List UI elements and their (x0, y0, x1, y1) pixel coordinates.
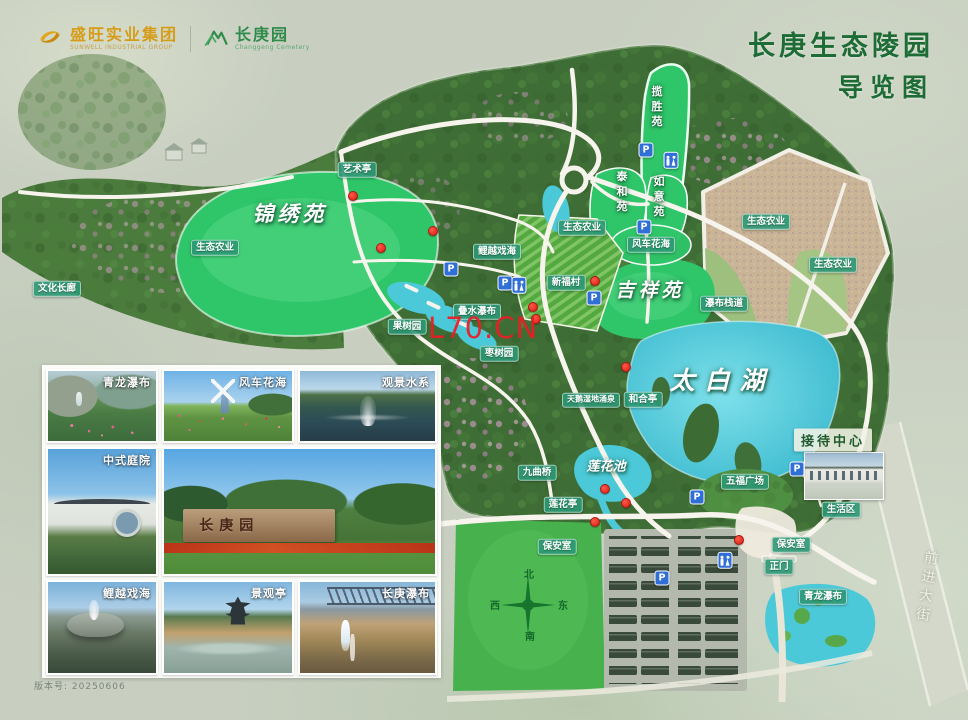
photo-label: 风车花海 (239, 374, 287, 390)
title-line1: 长庚生态陵园 (748, 24, 934, 63)
reception-photo (804, 452, 884, 500)
parking-icon: P (498, 276, 513, 291)
map-label-fengche-huahai-map: 风车花海 (627, 237, 675, 253)
gallery-photo-koi: 鲤越戏海 (46, 580, 158, 675)
company-name: 盛旺实业集团 (70, 26, 178, 44)
gallery-photo-windmill: 风车花海 (162, 369, 294, 443)
map-label-guoshuyuan: 果树园 (388, 319, 427, 335)
poi-marker (621, 498, 631, 508)
map-label-baoanshi-east: 保安室 (772, 537, 811, 553)
park-name: 长庚园 (235, 26, 310, 44)
restroom-icon (512, 277, 527, 294)
poi-marker (734, 535, 744, 545)
poi-marker (600, 484, 610, 494)
map-label-wufu-guangchang: 五福广场 (721, 474, 769, 490)
poi-marker (428, 226, 438, 236)
poi-marker (376, 243, 386, 253)
restroom-icon (718, 552, 733, 569)
poi-marker (621, 362, 631, 372)
company-logo: 盛旺实业集团 SUNWELL INDUSTRIAL GROUP (36, 24, 178, 54)
map-label-jixiangyuan: 吉祥苑 (615, 276, 684, 303)
map-label-lanshengyuan: 揽胜苑 (648, 86, 664, 131)
map-label-yishuting: 艺术亭 (338, 162, 377, 178)
map-label-taibaihu: 太白湖 (669, 361, 774, 397)
map-label-heheting: 和合亭 (624, 392, 663, 408)
gallery-photo-qinglong: 青龙瀑布 (46, 369, 158, 443)
photo-label: 中式庭院 (103, 452, 151, 468)
poi-marker (590, 276, 600, 286)
parking-icon: P (790, 462, 805, 477)
gallery-photo-falls: 长庚瀑布 (298, 580, 437, 675)
gallery-photo-pavilion: 景观亭 (162, 580, 294, 675)
gallery-photo-entrance: 长庚园 (162, 447, 437, 576)
map-label-shengtai-nongye-east2: 生态农业 (809, 257, 857, 273)
company-subtitle: SUNWELL INDUSTRIAL GROUP (70, 45, 178, 52)
photo-label: 景观亭 (251, 585, 287, 601)
photo-label: 观景水系 (382, 374, 430, 390)
map-label-liyue-xihai-map: 鲤越戏海 (473, 244, 521, 260)
map-label-qinglong-pubu-map: 青龙瀑布 (799, 589, 847, 605)
map-label-zhengmen: 正门 (764, 559, 793, 575)
map-label-shenghuoqu: 生活区 (822, 502, 861, 518)
map-label-wenhua-changlang: 文化长廊 (33, 281, 81, 297)
parking-icon: P (639, 143, 654, 158)
map-label-zaoshuyuan: 枣树园 (480, 346, 519, 362)
compass-rose-icon (501, 575, 555, 635)
photo-label: 鲤越戏海 (103, 585, 151, 601)
guide-map-page: 盛旺实业集团 SUNWELL INDUSTRIAL GROUP 长庚园 Chan… (0, 0, 968, 720)
map-title: 长庚生态陵园 导览图 (748, 24, 934, 104)
compass-west: 西 (490, 597, 500, 612)
entrance-wall-text: 长庚园 (199, 515, 259, 535)
compass: 北 南 西 东 (488, 566, 570, 644)
restroom-icon (664, 152, 679, 169)
map-label-ruyiyuan: 如意苑 (650, 176, 666, 221)
parking-icon: P (444, 262, 459, 277)
photo-label: 长庚瀑布 (382, 585, 430, 601)
map-label-jiuquqiao: 九曲桥 (518, 465, 557, 481)
version-number: 版本号: 20250606 (34, 679, 126, 692)
compass-east: 东 (558, 597, 568, 612)
poi-marker (590, 517, 600, 527)
map-label-lianhuachi: 莲花池 (586, 456, 625, 475)
map-label-tiane-shidi-yongquan: 天鹅湿地涌泉 (562, 393, 620, 408)
park-logo: 长庚园 Changgeng Cemetery (203, 25, 310, 53)
park-subtitle: Changgeng Cemetery (235, 45, 310, 52)
map-label-pubu-zhandao: 瀑布栈道 (700, 296, 748, 312)
parking-icon: P (690, 490, 705, 505)
park-logo-icon (203, 25, 229, 53)
gallery-photo-courtyard: 中式庭院 (46, 447, 158, 576)
map-label-shengtai-nongye-west: 生态农业 (191, 240, 239, 256)
map-label-baoanshi-west: 保安室 (538, 539, 577, 555)
parking-icon: P (655, 571, 670, 586)
map-label-taiheyuan: 泰和苑 (613, 171, 629, 216)
poi-marker (348, 191, 358, 201)
map-label-shengtai-nongye-east1: 生态农业 (742, 214, 790, 230)
watermark: L70.CN (428, 311, 538, 345)
map-label-jiedai-zhongxin: 接待中心 (794, 429, 872, 452)
map-label-xinfucun: 新福村 (547, 275, 586, 291)
company-logo-icon (36, 24, 64, 54)
map-label-shengtai-nongye-terrace: 生态农业 (558, 220, 606, 236)
map-label-jinxiuyuan: 锦绣苑 (253, 198, 328, 228)
logo-divider (190, 26, 191, 52)
title-line2: 导览图 (748, 68, 934, 104)
parking-icon: P (587, 291, 602, 306)
header: 盛旺实业集团 SUNWELL INDUSTRIAL GROUP 长庚园 Chan… (36, 24, 310, 54)
parking-icon: P (637, 220, 652, 235)
photo-label: 青龙瀑布 (103, 374, 151, 390)
gallery-photo-fountain: 观景水系 (298, 369, 437, 443)
map-label-lianhuating: 莲花亭 (544, 497, 583, 513)
